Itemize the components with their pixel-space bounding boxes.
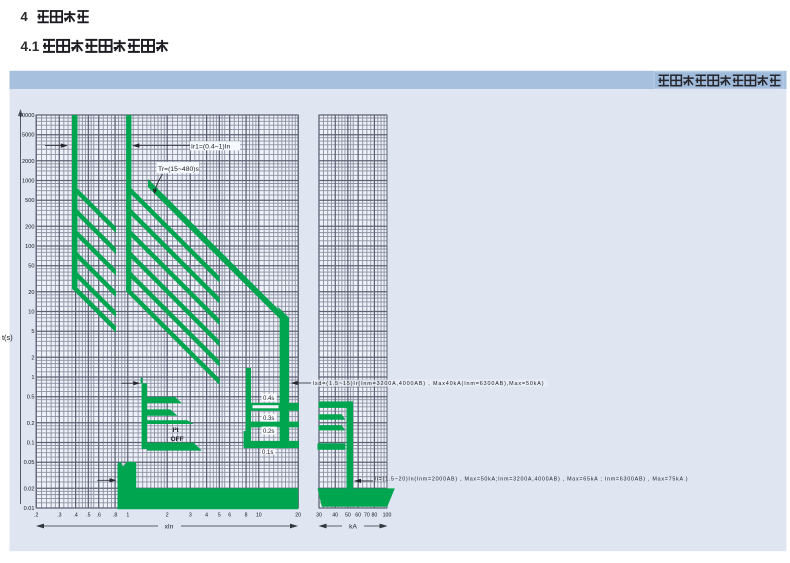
- svg-text:Ir1=(0.4~1)In: Ir1=(0.4~1)In: [191, 144, 231, 151]
- svg-text:100: 100: [383, 512, 392, 518]
- svg-text:OFF: OFF: [171, 436, 184, 443]
- svg-text:20: 20: [28, 290, 34, 296]
- svg-text:100: 100: [25, 244, 34, 250]
- svg-text:Isd=(1.5~15)Ir(Inm=3200A,4000A: Isd=(1.5~15)Ir(Inm=3200A,4000AB) , Max40…: [313, 381, 544, 387]
- svg-text:50: 50: [345, 512, 351, 518]
- svg-text:2: 2: [166, 512, 169, 518]
- svg-text:5: 5: [218, 512, 221, 518]
- svg-text:5000: 5000: [22, 133, 34, 139]
- svg-text:0.02: 0.02: [24, 486, 35, 492]
- svg-text:4.1: 4.1: [21, 39, 40, 54]
- svg-text:0.4s: 0.4s: [263, 396, 274, 402]
- svg-text:0.2: 0.2: [27, 421, 35, 427]
- svg-text:30: 30: [316, 512, 322, 518]
- svg-text:5: 5: [31, 329, 34, 335]
- svg-text:xIn: xIn: [165, 524, 174, 531]
- svg-text:40: 40: [332, 512, 338, 518]
- svg-text:0.5: 0.5: [27, 395, 35, 401]
- svg-text:0.1s: 0.1s: [262, 450, 273, 456]
- svg-text:.8: .8: [113, 512, 117, 518]
- svg-text:0.2s: 0.2s: [263, 429, 274, 435]
- svg-text:0.3s: 0.3s: [263, 416, 274, 422]
- svg-text:1: 1: [31, 375, 34, 381]
- svg-text:0.01: 0.01: [24, 506, 35, 512]
- svg-text:4: 4: [21, 9, 29, 24]
- svg-text:.6: .6: [97, 512, 101, 518]
- svg-text:70: 70: [364, 512, 370, 518]
- svg-text:0.05: 0.05: [24, 460, 35, 466]
- svg-text:10: 10: [28, 310, 34, 316]
- svg-text:500: 500: [25, 198, 34, 204]
- svg-text:4: 4: [205, 512, 208, 518]
- svg-text:10000: 10000: [19, 113, 35, 119]
- svg-text:kA: kA: [349, 524, 357, 531]
- svg-text:2000: 2000: [22, 159, 34, 165]
- svg-text:1: 1: [126, 512, 129, 518]
- svg-text:8: 8: [245, 512, 248, 518]
- svg-text:2: 2: [31, 355, 34, 361]
- svg-text:I²t: I²t: [173, 427, 180, 434]
- svg-text:.4: .4: [73, 512, 77, 518]
- svg-text:Ii=(1.5~20)In(Inm=2000AB) , Ma: Ii=(1.5~20)In(Inm=2000AB) , Max=50kA;Inm…: [375, 477, 688, 483]
- svg-text:.5: .5: [86, 512, 90, 518]
- svg-text:60: 60: [355, 512, 361, 518]
- svg-text:20: 20: [295, 512, 301, 518]
- svg-text:Tr=(15~480)s: Tr=(15~480)s: [158, 166, 200, 173]
- svg-text:50: 50: [28, 264, 34, 270]
- svg-text:80: 80: [372, 512, 378, 518]
- svg-text:0.1: 0.1: [27, 441, 35, 447]
- svg-text:3: 3: [189, 512, 192, 518]
- svg-text:1000: 1000: [22, 179, 34, 185]
- svg-text:.3: .3: [57, 512, 61, 518]
- svg-text:10: 10: [256, 512, 262, 518]
- svg-text:6: 6: [228, 512, 231, 518]
- svg-text:t(s): t(s): [2, 333, 13, 342]
- svg-text:200: 200: [25, 224, 34, 230]
- svg-text:.2: .2: [34, 512, 38, 518]
